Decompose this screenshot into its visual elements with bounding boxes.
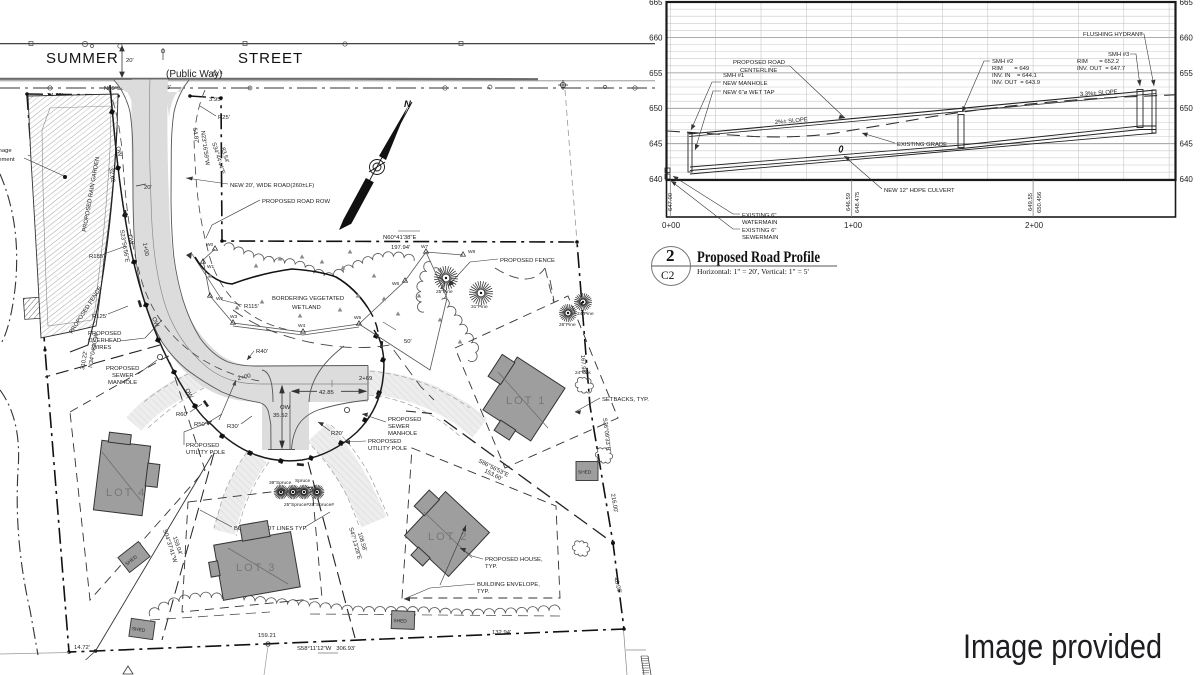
svg-text:BORDERING VEGETATED: BORDERING VEGETATED bbox=[272, 296, 344, 302]
svg-text:20': 20' bbox=[144, 185, 152, 191]
svg-text:R185': R185' bbox=[89, 254, 104, 260]
svg-text:SEWER: SEWER bbox=[388, 424, 410, 430]
svg-text:25"Spruce#: 25"Spruce# bbox=[284, 502, 309, 508]
svg-text:645: 645 bbox=[1180, 140, 1194, 149]
svg-text:R40': R40' bbox=[256, 349, 268, 355]
svg-text:4: 4 bbox=[220, 70, 223, 76]
svg-text:665: 665 bbox=[1180, 0, 1194, 7]
svg-text:SMH #3: SMH #3 bbox=[1108, 52, 1130, 58]
svg-text:R115': R115' bbox=[244, 304, 259, 310]
svg-text:Proposed Road Profile: Proposed Road Profile bbox=[697, 249, 820, 266]
svg-text:W2: W2 bbox=[216, 296, 224, 302]
svg-text:EXISTING GRADE: EXISTING GRADE bbox=[897, 142, 947, 148]
svg-text:640: 640 bbox=[1180, 175, 1194, 184]
svg-text:646.59: 646.59 bbox=[846, 193, 852, 211]
svg-text:INV. OUT = 647.7: INV. OUT = 647.7 bbox=[1077, 66, 1125, 72]
svg-text:C2: C2 bbox=[661, 270, 675, 282]
svg-text:PROPOSED: PROPOSED bbox=[388, 417, 421, 423]
svg-text:650: 650 bbox=[649, 104, 663, 113]
svg-text:SEWERMAIN: SEWERMAIN bbox=[742, 235, 778, 241]
svg-text:655: 655 bbox=[649, 69, 663, 78]
svg-text:R125': R125' bbox=[92, 314, 107, 320]
svg-text:W0: W0 bbox=[206, 242, 214, 248]
svg-text:WATERMAIN: WATERMAIN bbox=[742, 220, 777, 226]
svg-text:MANHOLE: MANHOLE bbox=[388, 431, 417, 437]
svg-text:SHED: SHED bbox=[393, 618, 407, 624]
svg-text:PROPOSED: PROPOSED bbox=[88, 331, 121, 337]
svg-text:OVERHEAD: OVERHEAD bbox=[88, 338, 121, 344]
svg-text:24"Pine: 24"Pine bbox=[577, 311, 594, 317]
svg-text:OW: OW bbox=[280, 405, 291, 411]
svg-text:WIRES: WIRES bbox=[92, 345, 111, 351]
svg-text:NEW MANHOLE: NEW MANHOLE bbox=[723, 81, 768, 87]
svg-text:N: N bbox=[404, 99, 412, 110]
svg-text:159.21: 159.21 bbox=[258, 633, 276, 639]
svg-text:25"Pine: 25"Pine bbox=[436, 289, 453, 295]
svg-text:R25': R25' bbox=[218, 115, 230, 121]
svg-text:655: 655 bbox=[1180, 69, 1194, 78]
svg-text:TYP.: TYP. bbox=[485, 564, 498, 570]
svg-text:1+00: 1+00 bbox=[844, 221, 863, 230]
svg-text:S58°11'12"W 306.93': S58°11'12"W 306.93' bbox=[297, 646, 355, 652]
svg-text:Horizontal: 1" = 20', Vertical: Horizontal: 1" = 20', Vertical: 1" = 5' bbox=[697, 267, 809, 276]
svg-text:PROPOSED: PROPOSED bbox=[368, 439, 401, 445]
svg-text:PROPOSED: PROPOSED bbox=[186, 443, 219, 449]
svg-text:50': 50' bbox=[404, 339, 412, 345]
svg-text:SMH #2: SMH #2 bbox=[992, 59, 1013, 65]
svg-text:LOT 4: LOT 4 bbox=[106, 487, 146, 499]
svg-text:W6: W6 bbox=[392, 281, 400, 287]
svg-text:660: 660 bbox=[649, 33, 663, 42]
svg-text:26"Pine: 26"Pine bbox=[559, 322, 576, 328]
svg-text:TYP.: TYP. bbox=[477, 589, 490, 595]
svg-text:NEW 12" HDPE CULVERT: NEW 12" HDPE CULVERT bbox=[884, 188, 955, 194]
svg-text:132.94': 132.94' bbox=[492, 630, 511, 636]
svg-text:2: 2 bbox=[666, 246, 675, 265]
svg-text:PROPOSED FENCE: PROPOSED FENCE bbox=[500, 258, 555, 264]
svg-text:NEW 6"ø WET TAP: NEW 6"ø WET TAP bbox=[723, 90, 775, 96]
svg-text:SETBACKS, TYP.: SETBACKS, TYP. bbox=[602, 397, 649, 403]
svg-text:649.55: 649.55 bbox=[1028, 192, 1034, 211]
svg-text:SEWER: SEWER bbox=[112, 373, 134, 379]
svg-text:UTILITY POLE: UTILITY POLE bbox=[368, 446, 407, 452]
svg-text:PROPOSED: PROPOSED bbox=[106, 366, 139, 372]
svg-text:PROPOSED ROAD: PROPOSED ROAD bbox=[733, 60, 785, 66]
svg-text:BUILDING ENVELOPE,: BUILDING ENVELOPE, bbox=[477, 582, 540, 588]
svg-text:PROPOSED ROAD ROW: PROPOSED ROAD ROW bbox=[262, 199, 331, 205]
svg-text:NEW 20', WIDE ROAD(260±LF): NEW 20', WIDE ROAD(260±LF) bbox=[230, 183, 314, 189]
svg-text:rainage: rainage bbox=[0, 148, 12, 154]
svg-text:asement: asement bbox=[0, 157, 15, 163]
svg-text:(Public Way): (Public Way) bbox=[166, 69, 222, 80]
svg-text:R30': R30' bbox=[227, 424, 239, 430]
svg-text:EXISTING 6": EXISTING 6" bbox=[742, 228, 777, 234]
svg-text:35.52: 35.52 bbox=[273, 413, 288, 419]
svg-text:650.456: 650.456 bbox=[1037, 191, 1043, 213]
svg-text:24"Oak: 24"Oak bbox=[575, 370, 591, 376]
svg-text:31"Pine: 31"Pine bbox=[471, 304, 488, 310]
svg-text:LOT 1: LOT 1 bbox=[506, 395, 546, 407]
svg-text:197.94': 197.94' bbox=[391, 245, 410, 251]
svg-text:39"Spruce: 39"Spruce bbox=[269, 480, 292, 486]
svg-text:648.475: 648.475 bbox=[855, 191, 861, 213]
svg-text:2+00: 2+00 bbox=[1025, 221, 1044, 230]
svg-text:Spruce: Spruce bbox=[295, 478, 311, 484]
svg-text:WETLAND: WETLAND bbox=[292, 305, 321, 311]
svg-text:RIM = 649: RIM = 649 bbox=[992, 66, 1029, 72]
svg-text:PROPOSED HOUSE,: PROPOSED HOUSE, bbox=[485, 557, 543, 563]
svg-text:W5: W5 bbox=[354, 315, 362, 321]
svg-text:RIM = 652.2: RIM = 652.2 bbox=[1077, 59, 1119, 65]
svg-text:665: 665 bbox=[649, 0, 663, 7]
svg-text:650: 650 bbox=[1180, 104, 1194, 113]
svg-text:42.85: 42.85 bbox=[319, 390, 334, 396]
svg-text:STREET: STREET bbox=[238, 50, 303, 67]
svg-text:N60°41'38"E: N60°41'38"E bbox=[383, 235, 416, 241]
svg-text:LOT 3: LOT 3 bbox=[236, 562, 276, 574]
svg-text:2+69: 2+69 bbox=[359, 376, 372, 382]
svg-text:SMH #1: SMH #1 bbox=[723, 73, 744, 79]
svg-text:INV. IN = 644.1: INV. IN = 644.1 bbox=[992, 73, 1037, 79]
svg-text:MANHOLE: MANHOLE bbox=[108, 380, 137, 386]
svg-text:20': 20' bbox=[126, 58, 134, 64]
svg-text:SHED: SHED bbox=[578, 470, 592, 476]
svg-text:CENTERLINE: CENTERLINE bbox=[740, 68, 777, 74]
svg-text:640: 640 bbox=[649, 175, 663, 184]
svg-text:14.72': 14.72' bbox=[74, 645, 90, 651]
svg-text:R20': R20' bbox=[331, 431, 343, 437]
svg-text:INV. OUT = 643.9: INV. OUT = 643.9 bbox=[992, 80, 1040, 86]
svg-text:FLUSHING HYDRANT: FLUSHING HYDRANT bbox=[1083, 32, 1143, 38]
svg-text:0+00: 0+00 bbox=[662, 221, 681, 230]
svg-text:W4: W4 bbox=[298, 323, 306, 329]
svg-text:645: 645 bbox=[649, 140, 663, 149]
svg-text:W3: W3 bbox=[230, 314, 238, 320]
svg-text:W1: W1 bbox=[207, 264, 215, 270]
svg-text:W7: W7 bbox=[421, 244, 429, 250]
svg-text:UTILITY POLE: UTILITY POLE bbox=[186, 450, 225, 456]
svg-text:W8: W8 bbox=[468, 249, 476, 255]
svg-text:SUMMER: SUMMER bbox=[46, 50, 119, 67]
svg-text:EXISTING 6": EXISTING 6" bbox=[742, 213, 777, 219]
svg-text:Image provided: Image provided bbox=[963, 628, 1162, 666]
svg-text:647.00: 647.00 bbox=[668, 192, 674, 211]
svg-text:660: 660 bbox=[1180, 33, 1194, 42]
svg-text:28"Spruce#: 28"Spruce# bbox=[309, 502, 334, 508]
